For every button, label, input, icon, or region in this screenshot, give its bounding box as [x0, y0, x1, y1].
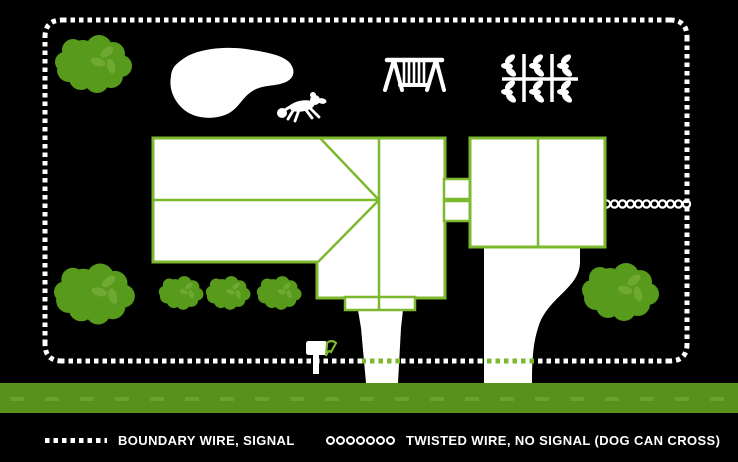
legend-twisted-label: TWISTED WIRE, NO SIGNAL (DOG CAN CROSS) [406, 433, 720, 448]
mailbox-icon [306, 341, 336, 374]
front-walkway [358, 310, 403, 383]
mailbox-flag [326, 341, 336, 356]
dotted-line-icon [45, 438, 107, 443]
bush-icon [206, 276, 251, 310]
bush-icon [257, 276, 302, 310]
twisted-wire [603, 200, 690, 207]
breezeway [444, 179, 470, 221]
garden-icon [501, 53, 578, 105]
legend-boundary-label: BOUNDARY WIRE, SIGNAL [118, 433, 295, 448]
legend-boundary-wire: BOUNDARY WIRE, SIGNAL [45, 427, 295, 453]
tree-icon [54, 264, 135, 325]
swing-set-icon [385, 60, 444, 90]
pond [170, 48, 293, 118]
twisted-rings-icon [326, 436, 395, 445]
garage [470, 138, 605, 247]
dog-icon [277, 92, 327, 121]
scene-svg [0, 0, 738, 462]
bush-icon [159, 276, 204, 310]
legend-twisted-wire: TWISTED WIRE, NO SIGNAL (DOG CAN CROSS) [326, 427, 720, 453]
road [0, 383, 738, 413]
tree-icon [55, 35, 132, 93]
invisible-fence-yard-diagram: BOUNDARY WIRE, SIGNAL TWISTED WIRE, NO S… [0, 0, 738, 462]
tree-icon [582, 263, 659, 321]
